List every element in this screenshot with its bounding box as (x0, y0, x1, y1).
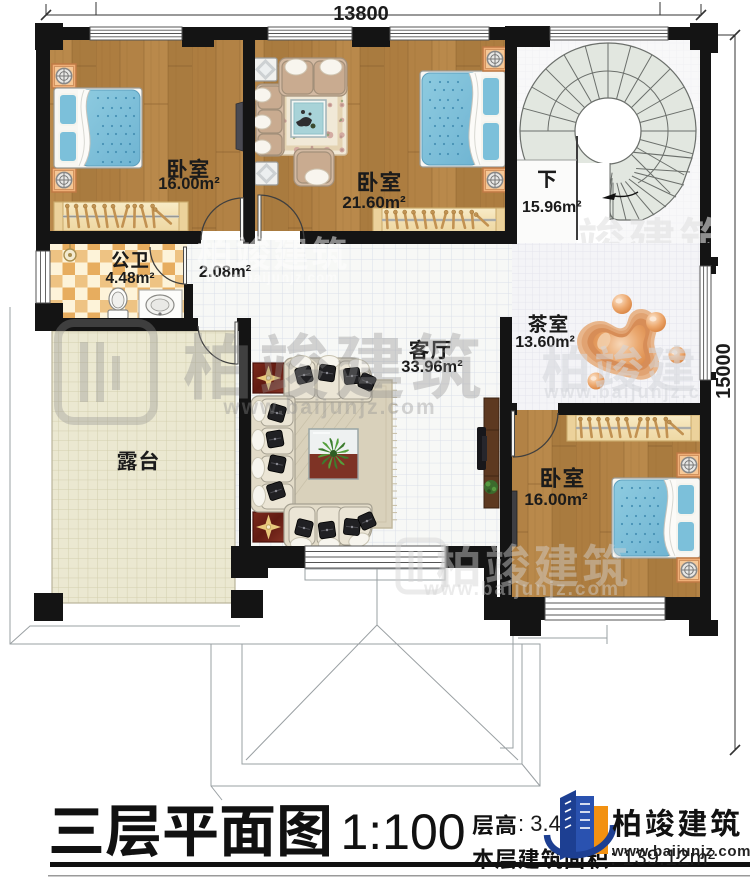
svg-text:16.00m²: 16.00m² (158, 175, 220, 193)
svg-text:15000: 15000 (713, 343, 735, 399)
svg-text:www.baijunjz.com: www.baijunjz.com (611, 843, 750, 860)
svg-text:13.60m²: 13.60m² (515, 334, 575, 351)
svg-text:1:100: 1:100 (340, 804, 465, 860)
svg-text:21.60m²: 21.60m² (342, 193, 406, 212)
svg-text:4.48m²: 4.48m² (105, 270, 154, 287)
svg-text:16.00m²: 16.00m² (524, 490, 588, 509)
svg-text:15.96m²: 15.96m² (522, 199, 582, 216)
svg-text:www.baijunjz.com: www.baijunjz.com (222, 396, 436, 419)
svg-text:www.baijunjz.com: www.baijunjz.com (423, 579, 620, 600)
svg-text:www.baijunjz.com: www.baijunjz.com (205, 270, 339, 285)
svg-text:13800: 13800 (333, 3, 389, 25)
